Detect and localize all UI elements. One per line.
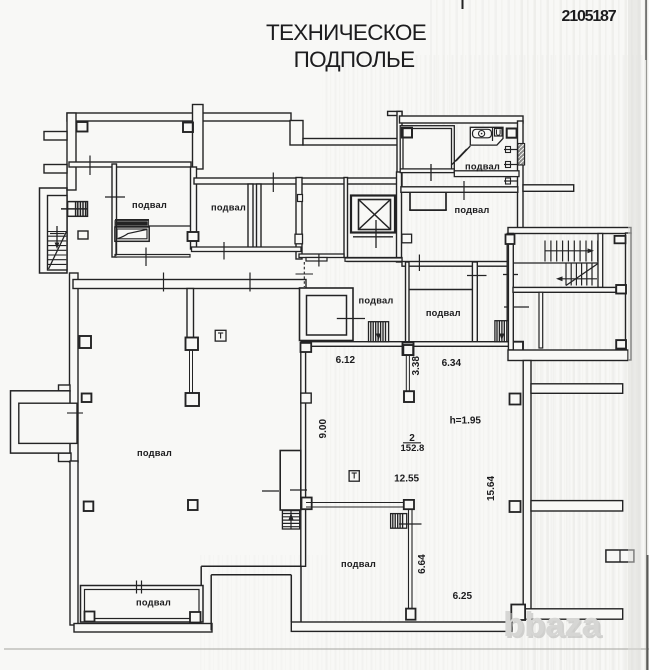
svg-text:12.55: 12.55 bbox=[394, 474, 419, 485]
svg-text:подвал: подвал bbox=[465, 162, 500, 172]
svg-text:2105187: 2105187 bbox=[562, 8, 617, 25]
svg-text:6.12: 6.12 bbox=[336, 355, 356, 366]
svg-text:подвал: подвал bbox=[341, 559, 376, 569]
svg-text:подвал: подвал bbox=[426, 308, 461, 318]
svg-text:6.64: 6.64 bbox=[417, 554, 428, 574]
svg-text:9.00: 9.00 bbox=[318, 419, 329, 439]
svg-text:подвал: подвал bbox=[359, 296, 394, 306]
svg-text:6.25: 6.25 bbox=[453, 591, 473, 602]
svg-text:ТЕХНИЧЕСКОЕ: ТЕХНИЧЕСКОЕ bbox=[266, 20, 427, 45]
svg-text:подвал: подвал bbox=[211, 203, 246, 213]
svg-text:bbaza: bbaza bbox=[503, 606, 602, 644]
svg-text:подвал: подвал bbox=[455, 205, 490, 215]
svg-text:152.8: 152.8 bbox=[401, 443, 425, 454]
svg-text:подвал: подвал bbox=[137, 448, 172, 458]
svg-text:подвал: подвал bbox=[132, 200, 167, 210]
svg-text:h=1.95: h=1.95 bbox=[450, 416, 482, 427]
svg-text:ПОДПОЛЬЕ: ПОДПОЛЬЕ bbox=[294, 47, 415, 72]
svg-text:3.38: 3.38 bbox=[411, 356, 422, 376]
svg-text:15.64: 15.64 bbox=[486, 476, 497, 501]
svg-text:подвал: подвал bbox=[136, 598, 171, 608]
svg-text:6.34: 6.34 bbox=[442, 358, 462, 369]
